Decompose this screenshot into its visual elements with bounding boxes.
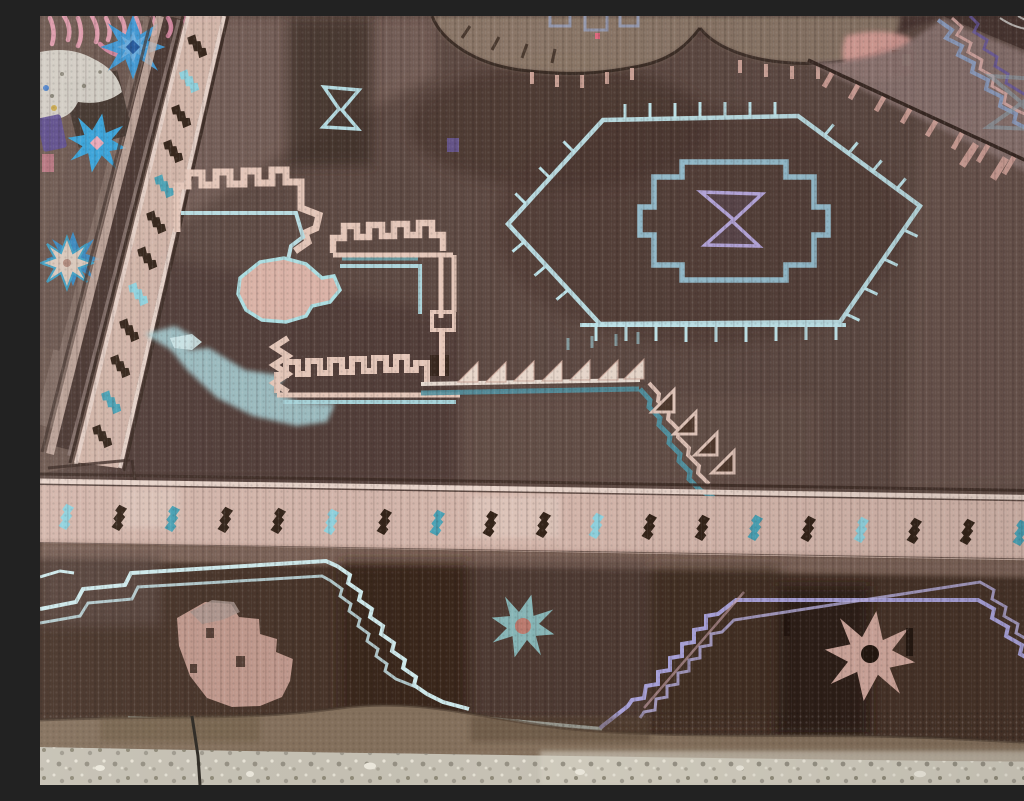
rug-photo-canvas: Antique handmade tribal rug on a concret… <box>40 16 1024 785</box>
rug-photograph: Antique handmade tribal rug on a concret… <box>40 16 1024 785</box>
lighting-overlay <box>40 16 1024 785</box>
